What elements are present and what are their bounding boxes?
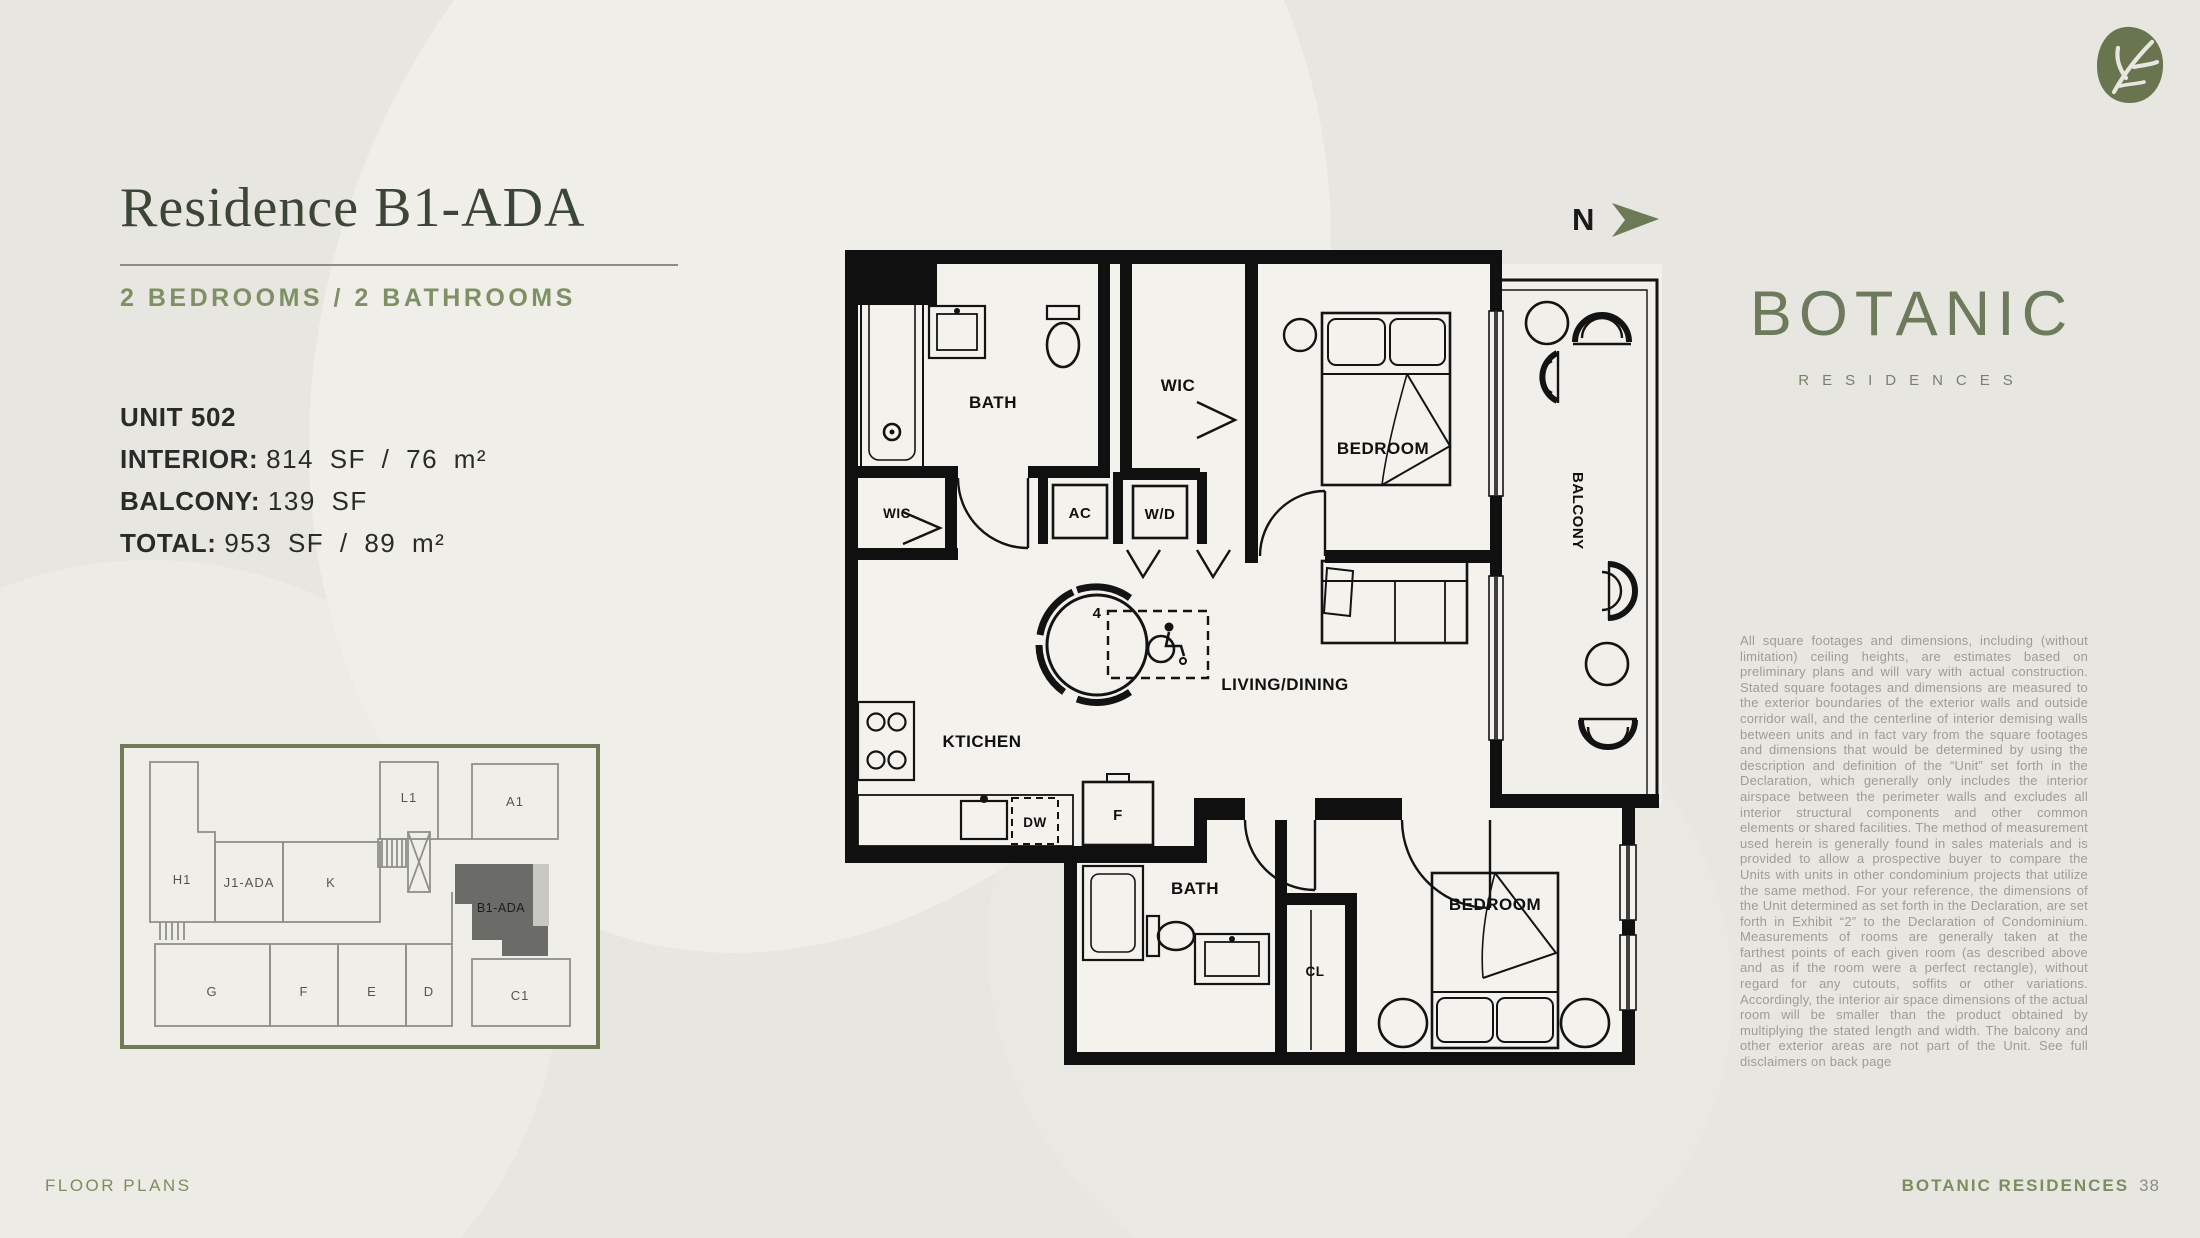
unit-info: UNIT 502 INTERIOR: 814 SF / 76 m² BALCON… bbox=[120, 396, 487, 564]
room-label-bath2: BATH bbox=[1171, 879, 1219, 898]
footer-brand: BOTANIC RESIDENCES bbox=[1902, 1176, 2129, 1195]
interior-value: 814 SF / 76 m² bbox=[266, 444, 487, 474]
north-label: N bbox=[1572, 202, 1594, 238]
unit-info-row: INTERIOR: 814 SF / 76 m² bbox=[120, 438, 487, 480]
title-divider bbox=[120, 264, 678, 266]
room-label-bedroom1: BEDROOM bbox=[1337, 439, 1429, 458]
room-label-ac: AC bbox=[1069, 505, 1092, 522]
keyplan-unit-k: K bbox=[326, 875, 336, 890]
key-plan: H1 J1-ADA K L1 A1 B1-ADA G F E D C1 bbox=[120, 744, 600, 1049]
keyplan-unit-j1ada: J1-ADA bbox=[224, 875, 275, 890]
north-indicator: N bbox=[1572, 202, 1662, 238]
interior-label: INTERIOR: bbox=[120, 444, 258, 474]
bed-bath-subtitle: 2 BEDROOMS / 2 BATHROOMS bbox=[120, 284, 720, 313]
room-label-wd: W/D bbox=[1145, 506, 1176, 523]
brand-logo: BOTANIC RESIDENCES bbox=[1740, 278, 2084, 389]
keyplan-unit-a1: A1 bbox=[506, 794, 524, 809]
page-title: Residence B1-ADA bbox=[120, 176, 720, 240]
room-label-wic-top: WIC bbox=[1161, 376, 1196, 395]
room-label-balcony: BALCONY bbox=[1569, 472, 1586, 550]
keyplan-unit-e: E bbox=[367, 984, 377, 999]
keyplan-unit-f: F bbox=[300, 984, 309, 999]
total-label: TOTAL: bbox=[120, 528, 217, 558]
room-label-living-dining: LIVING/DINING bbox=[1221, 675, 1348, 694]
north-arrow-icon bbox=[1610, 202, 1662, 238]
room-label-cl: CL bbox=[1306, 964, 1325, 979]
total-value: 953 SF / 89 m² bbox=[224, 528, 445, 558]
brand-name: BOTANIC bbox=[1740, 278, 2084, 350]
unit-info-row: BALCONY: 139 SF bbox=[120, 480, 487, 522]
keyplan-unit-g: G bbox=[206, 984, 217, 999]
room-label-kitchen: KTICHEN bbox=[942, 732, 1021, 751]
dining-table-seat-count: 4 bbox=[1093, 605, 1102, 622]
room-label-wic-small: WIC bbox=[883, 506, 911, 521]
footer-section-label: FLOOR PLANS bbox=[45, 1176, 192, 1196]
keyplan-unit-h1: H1 bbox=[173, 872, 192, 887]
balcony-label: BALCONY: bbox=[120, 486, 260, 516]
room-label-bedroom2: BEDROOM bbox=[1449, 895, 1541, 914]
room-label-fridge: F bbox=[1113, 807, 1123, 824]
floor-plan: BATH WIC BEDROOM BALCONY WIC AC W/D KTIC… bbox=[845, 250, 1665, 1065]
keyplan-unit-b1ada: B1-ADA bbox=[477, 901, 525, 915]
keyplan-unit-l1: L1 bbox=[401, 790, 417, 805]
room-label-dw: DW bbox=[1023, 815, 1047, 830]
disclaimer-text: All square footages and dimensions, incl… bbox=[1740, 633, 2088, 1070]
unit-number: UNIT 502 bbox=[120, 396, 487, 438]
floor-plan-page: Residence B1-ADA 2 BEDROOMS / 2 BATHROOM… bbox=[0, 0, 2200, 1238]
unit-info-row: TOTAL: 953 SF / 89 m² bbox=[120, 522, 487, 564]
keyplan-unit-c1: C1 bbox=[511, 988, 530, 1003]
brand-subname: RESIDENCES bbox=[1740, 372, 2084, 389]
keyplan-unit-d: D bbox=[424, 984, 434, 999]
footer-page-number: 38 bbox=[2139, 1176, 2160, 1195]
footer-brand-page: BOTANIC RESIDENCES38 bbox=[1902, 1176, 2160, 1196]
leaf-icon bbox=[2088, 20, 2174, 110]
balcony-value: 139 SF bbox=[268, 486, 368, 516]
title-block: Residence B1-ADA 2 BEDROOMS / 2 BATHROOM… bbox=[120, 176, 720, 313]
room-label-bath1: BATH bbox=[969, 393, 1017, 412]
